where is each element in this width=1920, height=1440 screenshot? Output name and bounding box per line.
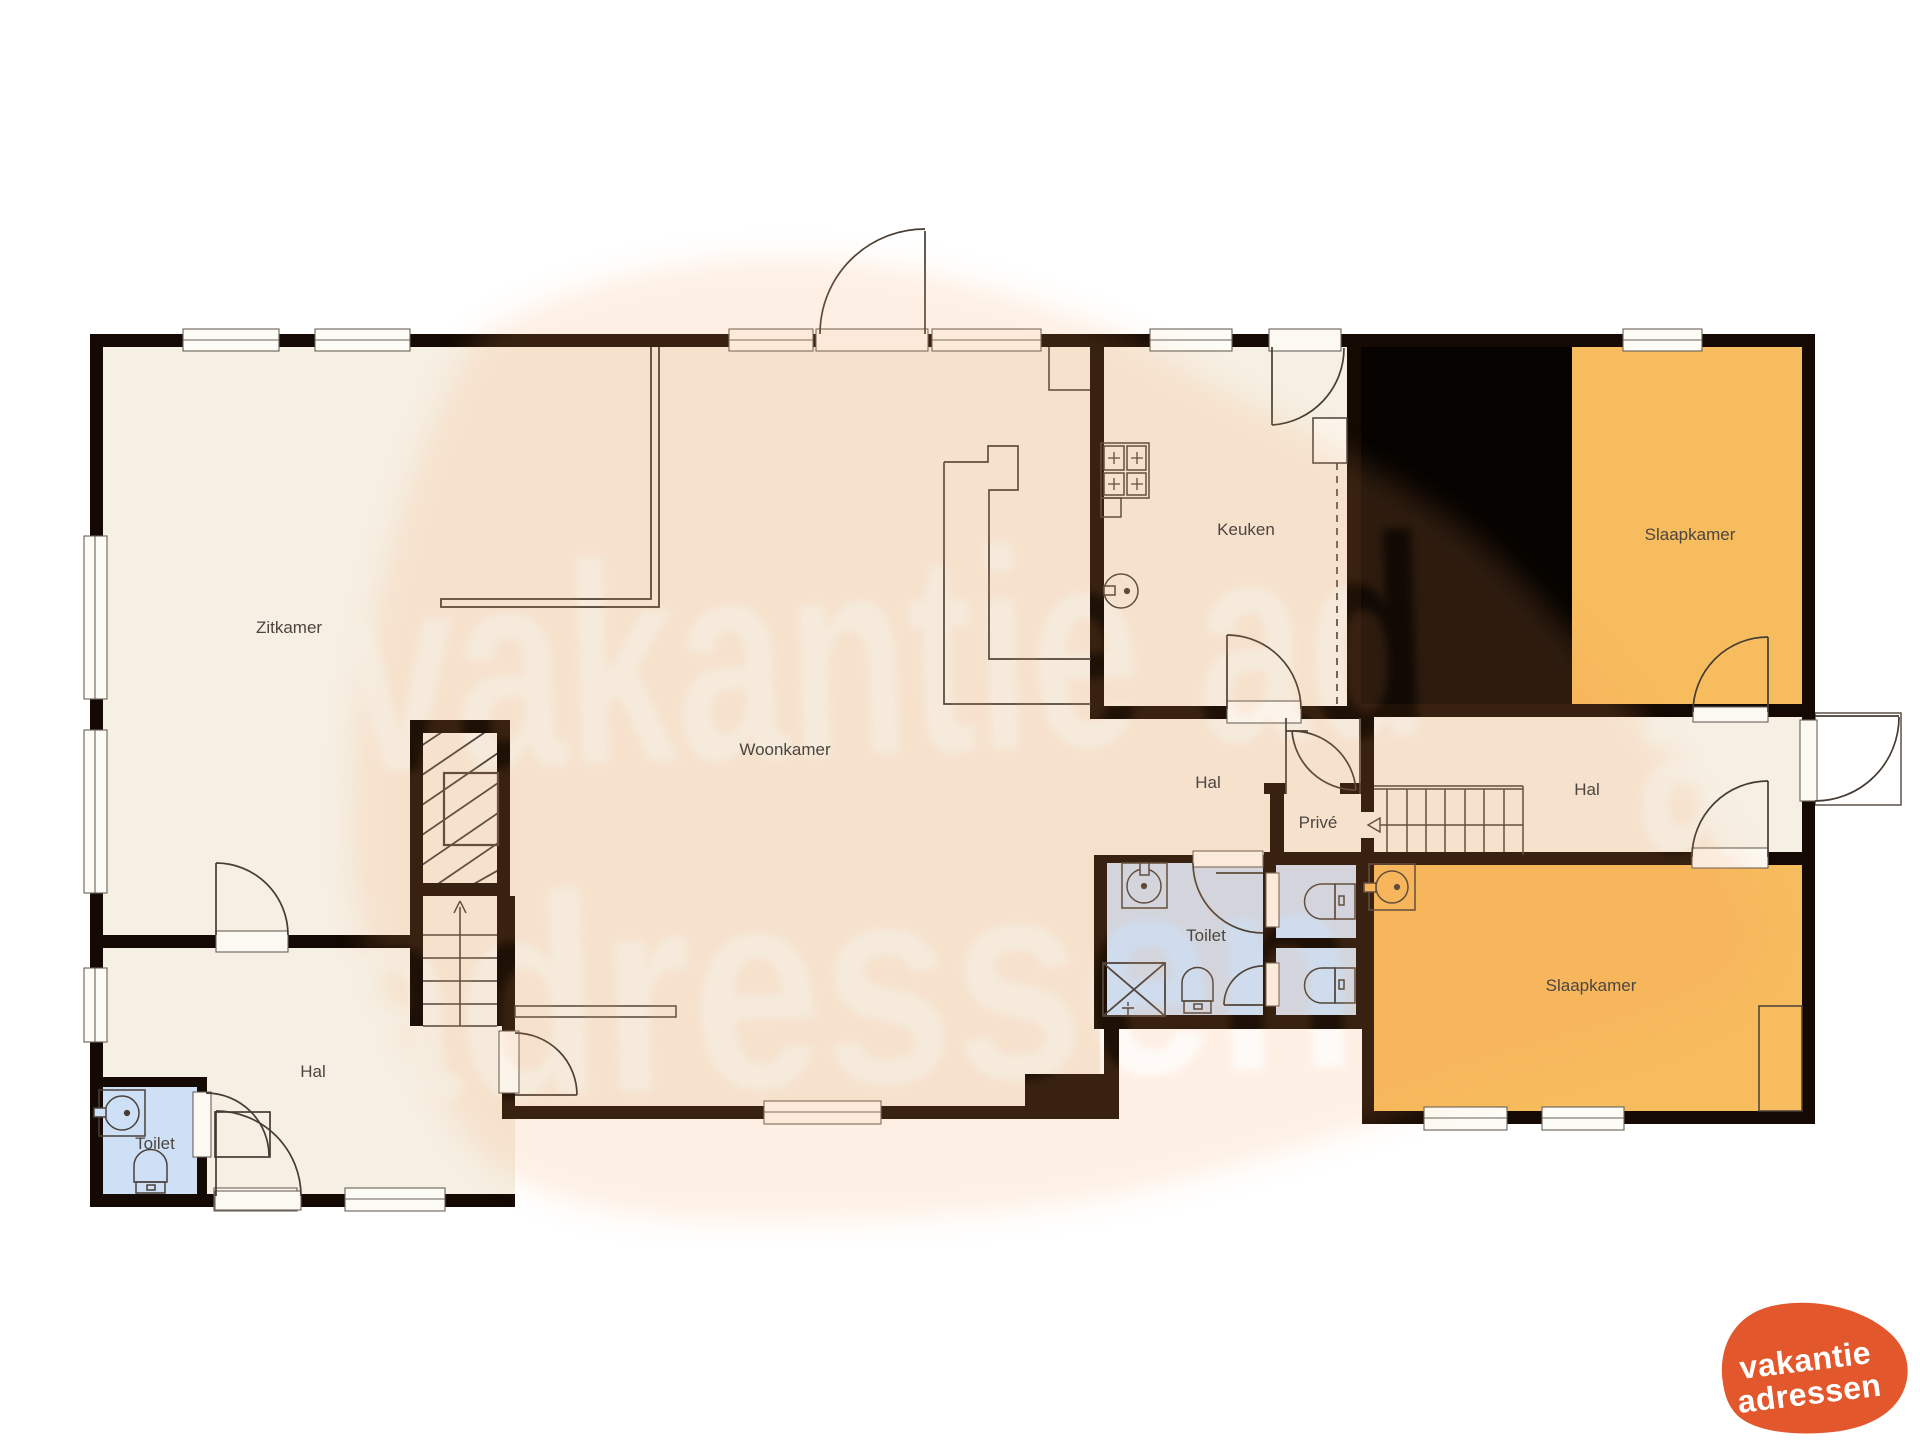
- svg-text:Hal: Hal: [300, 1062, 326, 1081]
- svg-text:Keuken: Keuken: [1217, 520, 1275, 539]
- svg-text:Slaapkamer: Slaapkamer: [1645, 525, 1736, 544]
- svg-text:Hal: Hal: [1195, 773, 1221, 792]
- svg-text:Toilet: Toilet: [135, 1134, 175, 1153]
- svg-text:Zitkamer: Zitkamer: [256, 618, 322, 637]
- svg-text:Toilet: Toilet: [1186, 926, 1226, 945]
- svg-text:Slaapkamer: Slaapkamer: [1546, 976, 1637, 995]
- svg-text:Hal: Hal: [1574, 780, 1600, 799]
- svg-text:Privé: Privé: [1299, 813, 1338, 832]
- svg-text:Woonkamer: Woonkamer: [739, 740, 831, 759]
